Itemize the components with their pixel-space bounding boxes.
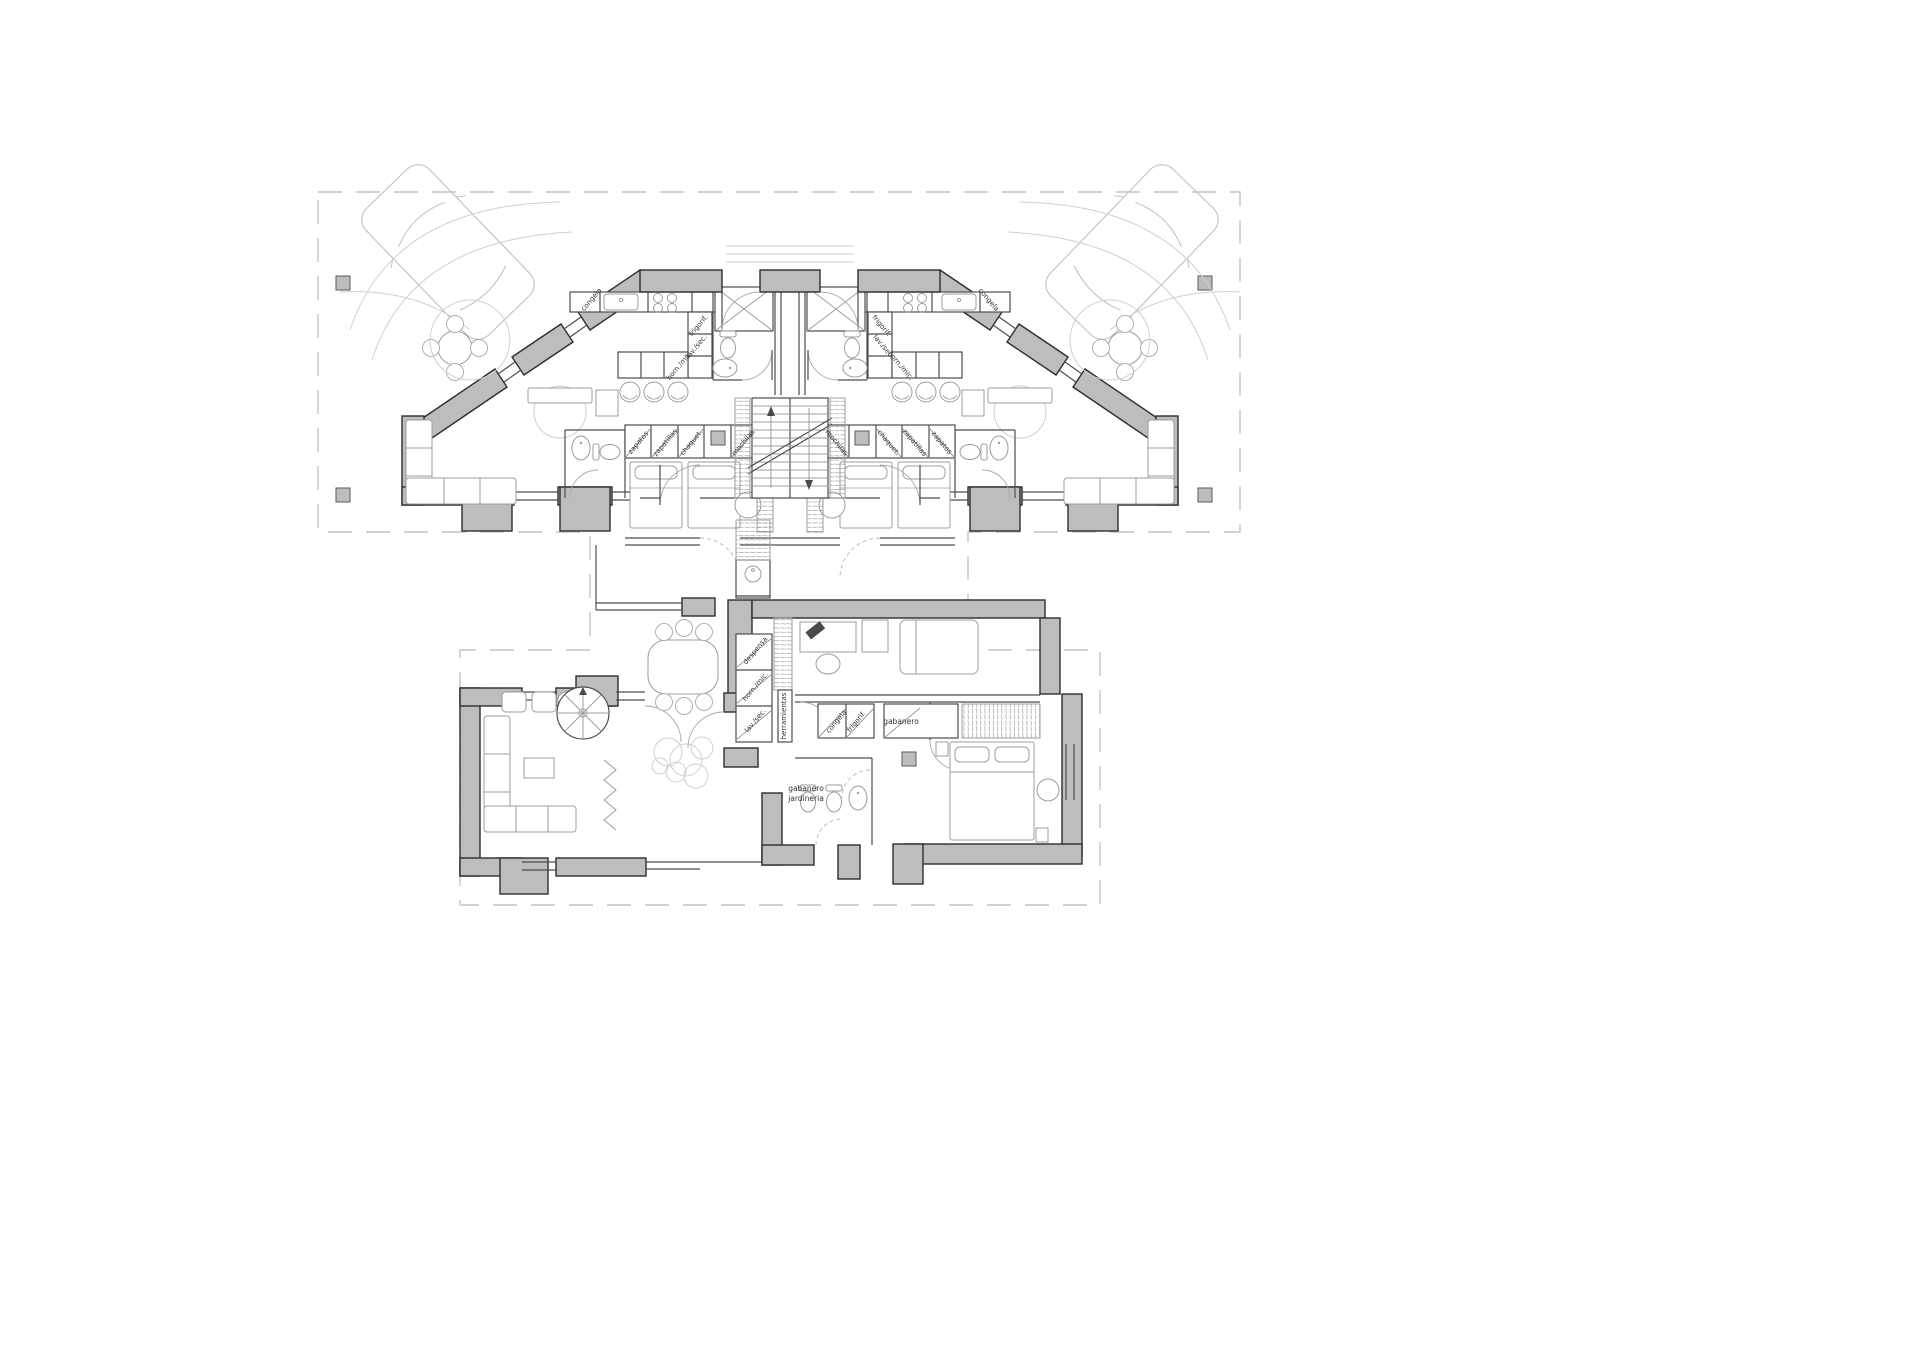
site-column-marker — [1198, 488, 1212, 502]
master-bedroom — [936, 742, 1074, 842]
plan-label-low-jardineria: jardineria — [787, 794, 824, 803]
plan-label-low-herramientas: herramientas — [780, 692, 788, 739]
cabinet — [862, 620, 888, 652]
desk — [800, 622, 856, 652]
spiral-stair — [557, 687, 609, 739]
dining-area — [648, 620, 718, 715]
stair-core — [735, 398, 845, 498]
nightstand — [936, 742, 948, 756]
chair — [1037, 779, 1059, 801]
office — [800, 620, 978, 674]
pantry — [736, 520, 770, 560]
daybed — [900, 620, 978, 674]
plants — [652, 737, 713, 788]
entry-porch — [726, 246, 854, 262]
column-marker — [902, 752, 916, 766]
bed — [630, 462, 682, 528]
site-column-marker — [336, 488, 350, 502]
tools-shelf — [774, 618, 792, 690]
upper-wing-right — [799, 153, 1240, 532]
plan-label-low-gabanero2: gabanero — [788, 784, 824, 793]
sink — [713, 359, 737, 377]
plan-label-low-gabanero: gabanero — [883, 717, 919, 726]
desk-chair — [816, 654, 840, 674]
upper-wing — [340, 153, 781, 532]
coffee-table — [524, 758, 554, 778]
site-column-marker — [336, 276, 350, 290]
sink — [849, 786, 867, 810]
side-table — [596, 390, 618, 416]
terrace-table — [423, 300, 511, 381]
folding-screen — [604, 760, 616, 830]
armchair — [532, 692, 556, 712]
toilet — [720, 331, 736, 358]
console — [528, 388, 592, 403]
column-marker — [711, 431, 725, 445]
nightstand — [1036, 828, 1048, 842]
lower-unit — [460, 520, 1082, 894]
bidet — [826, 785, 842, 812]
armchair — [502, 692, 526, 712]
front-wall — [640, 246, 940, 330]
bed — [688, 462, 740, 528]
entry-arc — [688, 712, 724, 748]
wardrobe — [962, 704, 1040, 738]
floor-plan-page: congelafrigorif.lav./sec.horn./mic.zapat… — [0, 0, 1920, 1357]
sofa — [406, 420, 516, 504]
floor-plan-drawing: congelafrigorif.lav./sec.horn./mic.zapat… — [0, 0, 1920, 1357]
